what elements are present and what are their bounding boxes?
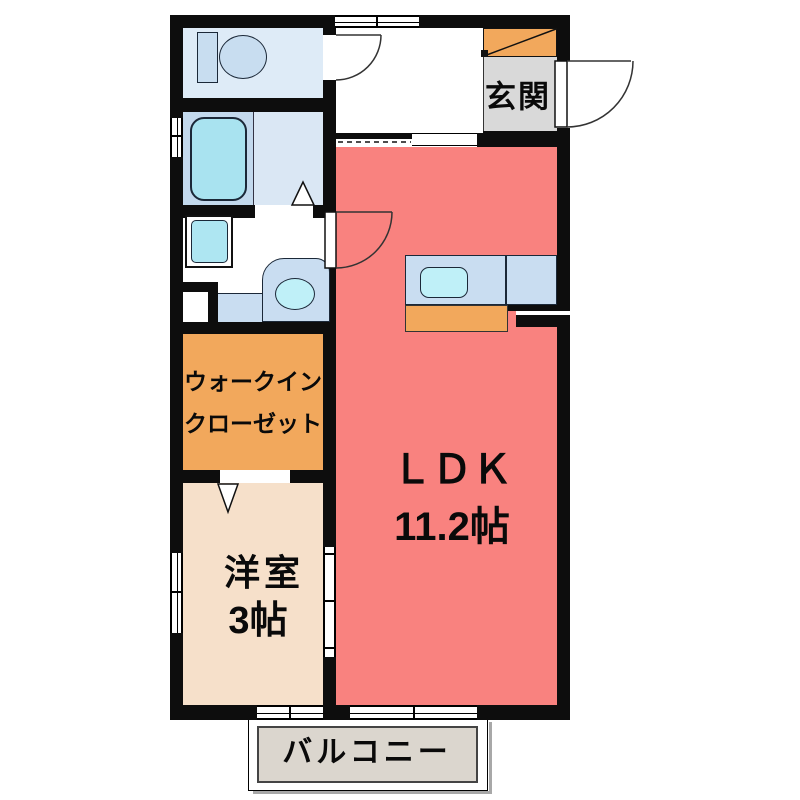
ldk-size-label: 11.2帖 [394, 507, 510, 547]
entrance-door-leaf [555, 61, 567, 127]
genkan-label: 玄関 [485, 82, 551, 113]
entrance-door-arc [567, 61, 633, 127]
floor-plan: 玄関 ＬＤＫ 11.2帖 ウォークイン クローゼット 洋室 3帖 バルコニー [0, 0, 800, 800]
shoe-cabinet-diagonal [484, 29, 556, 56]
western-room-label: 洋室 [224, 555, 304, 591]
plan-line-art [0, 0, 800, 800]
washroom-door-leaf [325, 212, 336, 268]
washroom-door-arc [336, 212, 392, 268]
bathroom-door-triangle [292, 182, 314, 205]
toilet-door-arc [336, 35, 381, 80]
ldk-label: ＬＤＫ [392, 450, 512, 490]
western-room-door-triangle [218, 484, 238, 512]
walk-in-closet-label-line2: クローゼット [184, 413, 322, 436]
balcony-label: バルコニー [282, 738, 451, 768]
western-room-size-label: 3帖 [228, 602, 287, 640]
shoe-cabinet-corner-dot [481, 50, 488, 57]
walk-in-closet-label-line1: ウォークイン [184, 371, 322, 394]
